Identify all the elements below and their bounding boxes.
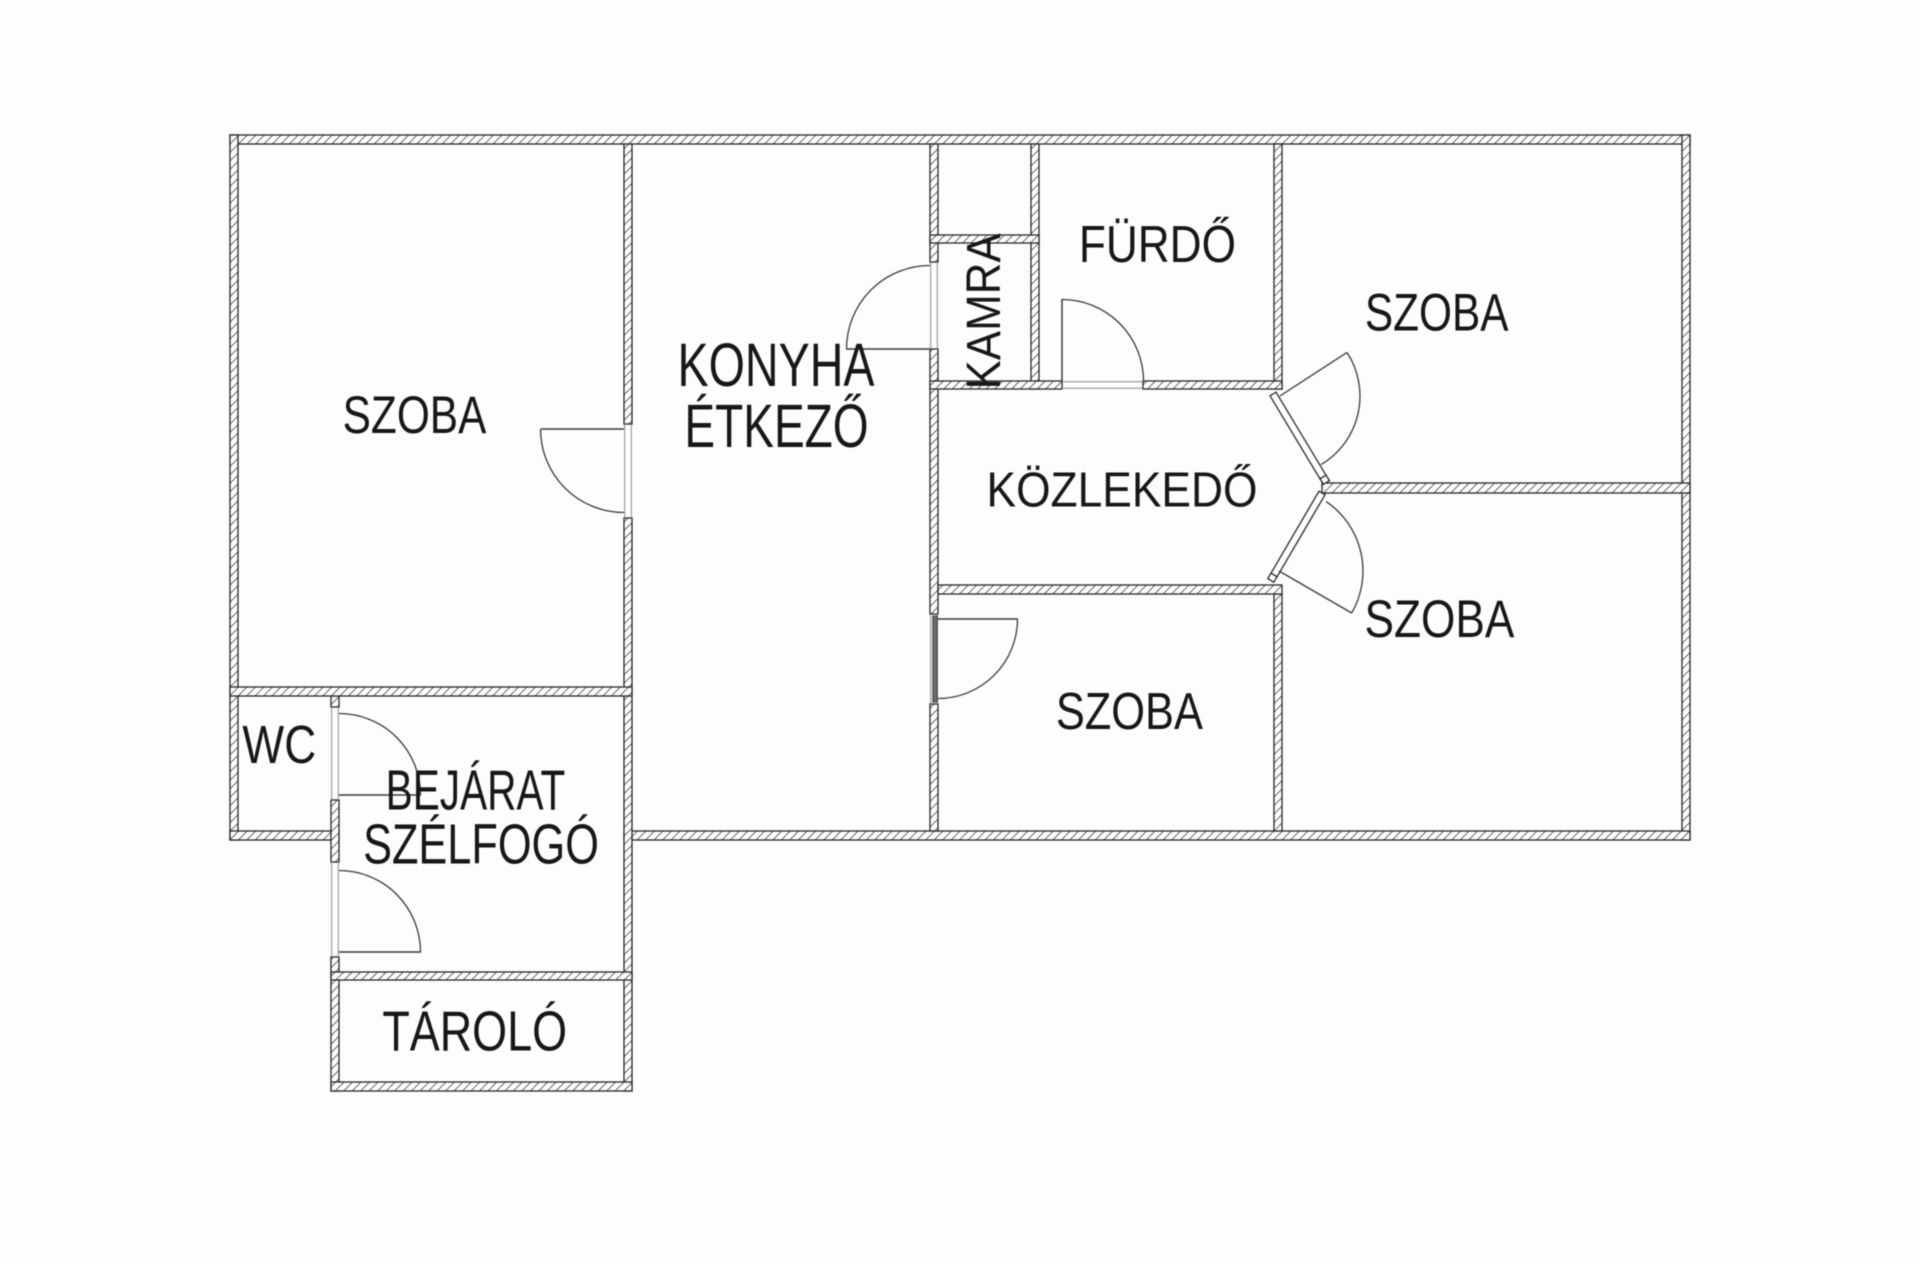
svg-text:WC: WC [242, 715, 316, 775]
svg-text:SZOBA: SZOBA [1365, 590, 1515, 649]
svg-text:SZOBA: SZOBA [1056, 684, 1203, 742]
svg-text:SZOBA: SZOBA [1365, 284, 1509, 343]
svg-text:SZÉLFOGÓ: SZÉLFOGÓ [363, 812, 599, 876]
svg-text:FÜRDŐ: FÜRDŐ [1079, 216, 1236, 274]
svg-text:TÁROLÓ: TÁROLÓ [382, 1000, 567, 1063]
svg-text:KÖZLEKEDŐ: KÖZLEKEDŐ [986, 462, 1257, 517]
svg-text:KONYHA: KONYHA [677, 331, 875, 400]
svg-text:KAMRA: KAMRA [956, 233, 1010, 389]
svg-text:ÉTKEZŐ: ÉTKEZŐ [684, 393, 868, 461]
svg-text:SZOBA: SZOBA [343, 387, 487, 446]
